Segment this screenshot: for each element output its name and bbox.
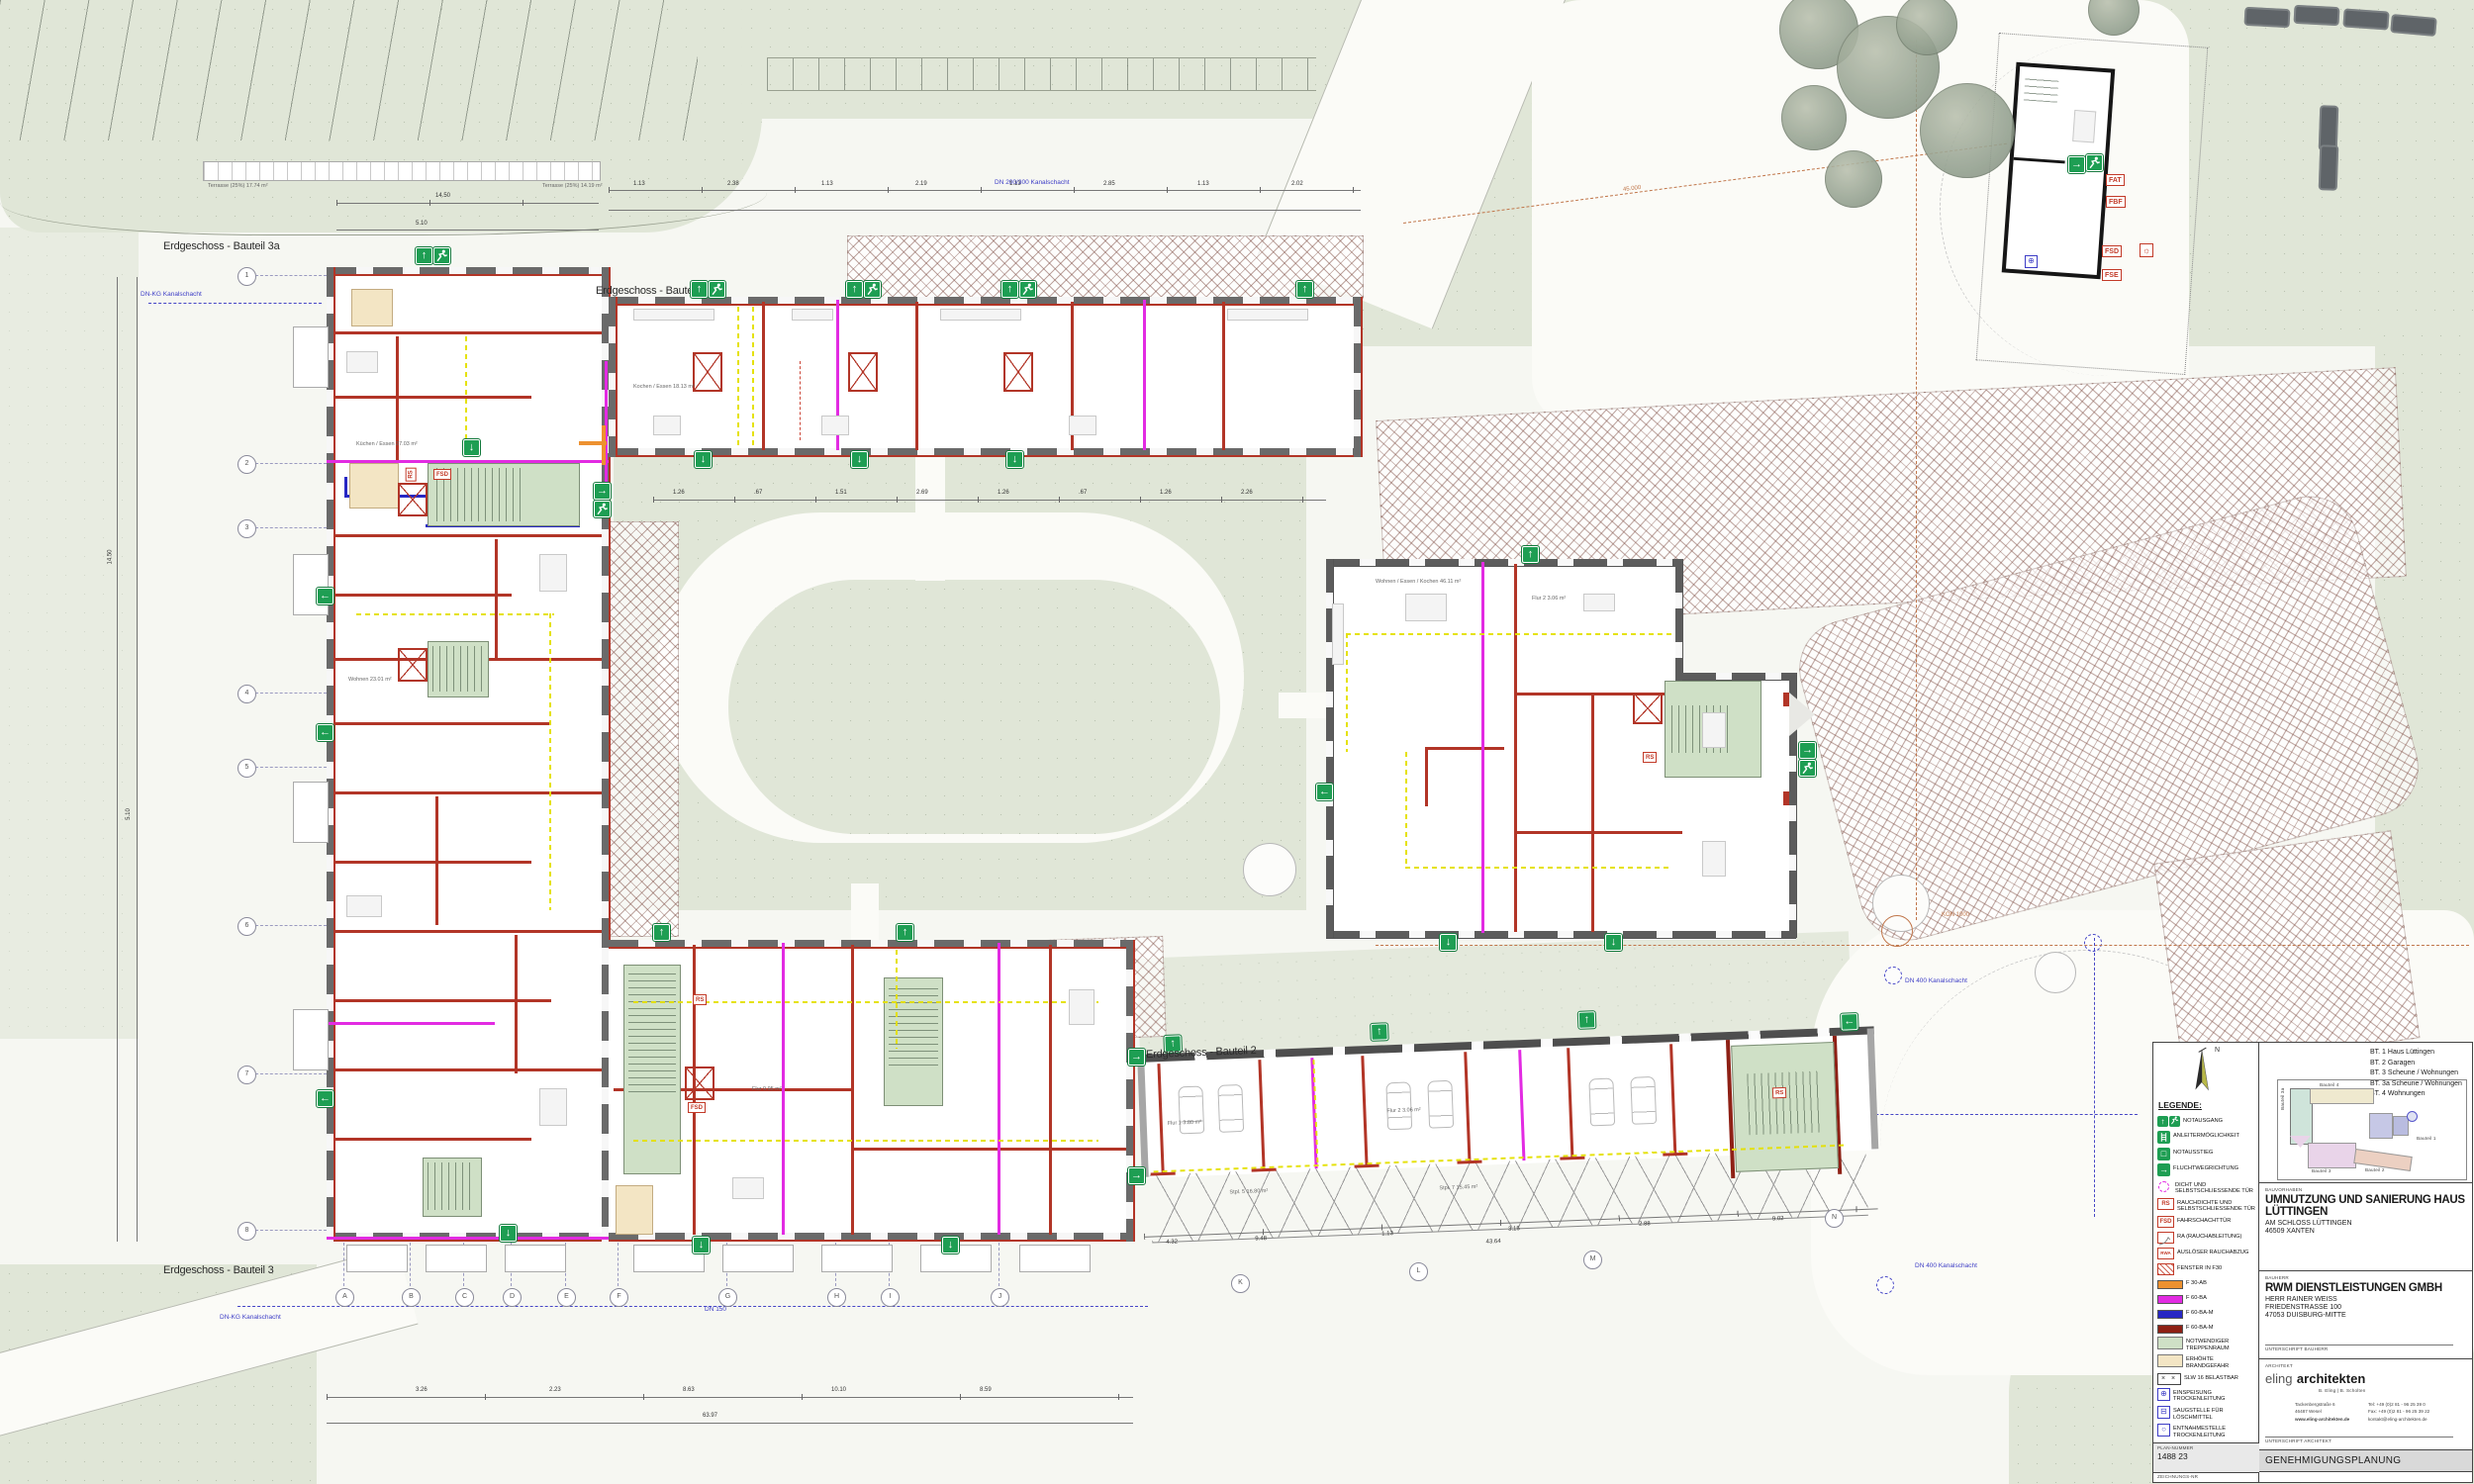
dim-value: 9.02: [1772, 1216, 1784, 1222]
keyplan-label: Bauteil 2: [2365, 1167, 2385, 1172]
client-city: 47053 DUISBURG-MITTE: [2259, 1311, 2472, 1319]
bt-list-item: BT. 2 Garagen: [2370, 1059, 2469, 1069]
f60ba-swatch: [2157, 1295, 2183, 1304]
ladder-icon: [2157, 1131, 2170, 1144]
wall: [1326, 559, 1682, 567]
partition: [1049, 945, 1052, 1235]
dim-value: 5.10: [126, 808, 132, 820]
kitchen-counter: [792, 309, 833, 321]
ghost-car: [1630, 1076, 1657, 1125]
drain-shaft: [1884, 967, 1902, 984]
crosshatch-paving: [847, 235, 1364, 299]
wall: [1682, 931, 1796, 939]
rs-door-tag: RS: [1643, 752, 1657, 763]
project-label: BAUVORHABEN: [2259, 1183, 2472, 1192]
cable-route: [465, 336, 467, 455]
manhole-kon: [1881, 915, 1913, 947]
drain-label: DN 200/300 Kanalschacht: [995, 179, 1070, 186]
exit-runner-icon: [433, 247, 450, 264]
grid-col-f: F: [610, 1288, 628, 1307]
legend-label: F 30-AB: [2186, 1278, 2207, 1286]
furniture: [539, 1088, 567, 1126]
self-closing-door-icon: [2158, 1181, 2169, 1192]
drain-shaft: [2084, 934, 2102, 952]
grid-row-8: 8: [238, 1222, 256, 1241]
kitchen-counter: [1332, 603, 1344, 665]
grid-col-j: J: [991, 1288, 1009, 1307]
tree: [1825, 150, 1882, 208]
legend-label: ANLEITERMÖGLICHKEIT: [2173, 1131, 2239, 1139]
partition: [1425, 747, 1504, 750]
dim-value: 2.26: [1241, 490, 1253, 496]
grid-col-h: H: [827, 1288, 846, 1307]
wall: [1675, 559, 1683, 683]
dim-value: 2.38: [727, 181, 739, 187]
partition: [1222, 302, 1225, 450]
drain-label: DN-KG Kanalschacht: [220, 1314, 281, 1321]
keyplan-label: Bauteil 1: [2417, 1136, 2436, 1141]
keyplan-row: BT. 1 Haus Lüttingen BT. 2 Garagen BT. 3…: [2259, 1043, 2472, 1183]
building-2-garages: RS ↑ ↑ ↑ ← Flur 1 3.80 m² Flur 2 3.06 m²…: [1136, 998, 1882, 1268]
fire-hazard-room: [616, 1185, 653, 1235]
fire-hazard-room: [351, 289, 393, 326]
exit-sign-icon: ←: [317, 588, 333, 604]
firm-partners: B. Eling | B. Scholten: [2259, 1388, 2472, 1393]
parked-car: [2244, 7, 2291, 28]
client-street: FRIEDENSTRASSE 100: [2259, 1303, 2472, 1311]
stair-treads: [2024, 74, 2059, 102]
room-label: Wohnen 23.01 m²: [348, 677, 392, 683]
parking-stalls: [767, 57, 1316, 91]
architect-row: ARCHITEKT eling architekten B. Eling | B…: [2259, 1359, 2472, 1450]
cable-route: [752, 307, 754, 445]
dim-value: 10.10: [831, 1387, 846, 1393]
legend-label: FENSTER IN F30: [2177, 1263, 2222, 1271]
stairwell: [423, 1158, 482, 1217]
legend-label: SAUGSTELLE FÜR LÖSCHMITTEL: [2173, 1406, 2256, 1420]
firewall-f60bam: [344, 477, 347, 498]
exit-sign-icon: ↑: [1578, 1011, 1596, 1029]
cable-route: [737, 307, 739, 445]
grid-leader: [999, 1243, 999, 1286]
partition: [915, 302, 918, 450]
dim-value: .67: [1079, 490, 1087, 496]
partition: [495, 539, 498, 658]
drain-line: [238, 1306, 1148, 1307]
terrace: [821, 1245, 893, 1272]
terrace: [505, 1245, 566, 1272]
partition: [333, 1138, 531, 1141]
crosshatch-paving: [2153, 830, 2420, 1071]
firewall-f60ba: [1143, 300, 1146, 450]
partition: [333, 930, 602, 933]
title-block: N LEGENDE: ↑NOTAUSGANG ANLEITERMÖGLICHKE…: [2152, 1042, 2473, 1483]
stair-treads: [428, 1162, 475, 1210]
firm-name-light: eling: [2265, 1371, 2292, 1386]
partition: [333, 861, 531, 864]
grid-row-3: 3: [238, 519, 256, 538]
exit-sign-icon: ↓: [1605, 934, 1622, 951]
dim-value: 5.10: [416, 221, 428, 227]
legend-label: F 60-BA: [2186, 1293, 2207, 1301]
fsd-door-tag: FSD: [2102, 245, 2122, 257]
grid-col-e: E: [557, 1288, 576, 1307]
exit-sign-icon: ↓: [851, 451, 868, 468]
firewall-f60ba: [327, 1022, 495, 1025]
rwa-icon: RWA: [2157, 1248, 2174, 1259]
dim-value: 2.69: [916, 490, 928, 496]
dim-value: 1.51: [835, 490, 847, 496]
exit-sign-icon: ↓: [463, 439, 480, 456]
firm-phone: Tel: +49 (0)2 81 - 96 25 39 0 Fax: +49 (…: [2368, 1401, 2429, 1423]
plan-number-cell: PLAN-NUMMER 1488 23: [2153, 1442, 2259, 1473]
terrace: [722, 1245, 794, 1272]
stair-treads: [432, 646, 482, 692]
exit-sign-icon: ←: [317, 1090, 333, 1107]
grid-leader: [255, 463, 327, 464]
parked-car: [2390, 14, 2436, 37]
dim-ticks: [609, 187, 1361, 193]
legend-item: F 60-BA: [2157, 1293, 2256, 1304]
exit-sign-icon: ↑: [653, 924, 670, 941]
grid-col-n: N: [1825, 1209, 1844, 1228]
legend-label: SLW 16 BELASTBAR: [2184, 1373, 2238, 1381]
sofa: [1583, 594, 1615, 611]
courtyard-path: [915, 455, 945, 581]
grid-row-5: 5: [238, 759, 256, 778]
room-label: Küchen / Essen 27.03 m²: [356, 441, 418, 447]
legend-item: ANLEITERMÖGLICHKEIT: [2157, 1131, 2256, 1144]
dim-value: 9.48: [1255, 1236, 1267, 1242]
project-street: AM SCHLOSS LÜTTINGEN: [2259, 1218, 2472, 1227]
legend-column: N LEGENDE: ↑NOTAUSGANG ANLEITERMÖGLICHKE…: [2153, 1043, 2259, 1482]
furniture: [732, 1177, 764, 1199]
kitchen-counter: [633, 309, 714, 321]
wall: [609, 297, 618, 457]
slw16-icon: × ×: [2157, 1373, 2181, 1385]
grid-leader: [618, 1243, 618, 1286]
furniture: [539, 554, 567, 592]
plan-number-label: PLAN-NUMMER: [2153, 1443, 2259, 1450]
cable-route: [1346, 633, 1348, 752]
drain-line: [2094, 938, 2095, 1217]
firm-city: 46487 Wesel: [2295, 1408, 2349, 1415]
bed: [1702, 712, 1726, 748]
legend-label: FLUCHTWEGRICHTUNG: [2173, 1163, 2238, 1171]
ghost-car: [1385, 1081, 1412, 1130]
dim-value: 1.26: [998, 490, 1009, 496]
stair-shaft-symbol: [848, 352, 878, 392]
wall: [609, 448, 1361, 457]
grid-row-2: 2: [238, 455, 256, 474]
elevator-shaft: [398, 648, 428, 682]
firm-name-bold: architekten: [2297, 1371, 2365, 1386]
grid-row-6: 6: [238, 917, 256, 936]
legend-item: →FLUCHTWEGRICHTUNG: [2157, 1163, 2256, 1176]
tapping-point-icon: ○: [2157, 1424, 2170, 1437]
utility-line: [1916, 40, 1917, 920]
partition: [762, 302, 765, 450]
legend-label: RA (RAUCHABLEITUNG): [2177, 1232, 2241, 1240]
exit-sign-icon: ↑: [416, 247, 432, 264]
keyplan-bauteil1: [2369, 1113, 2393, 1139]
dim-line: [336, 230, 599, 231]
signature-line: [2265, 1437, 2453, 1438]
exit-sign-icon: ↑: [1371, 1023, 1388, 1041]
legend-item: RWAAUSLÖSER RAUCHABZUG: [2157, 1248, 2256, 1259]
f60bam2-swatch: [2157, 1325, 2183, 1334]
fire-hazard-swatch: [2157, 1354, 2183, 1367]
firewall-f30ab: [602, 425, 606, 465]
client-name: RWM DIENSTLEISTUNGEN GMBH: [2259, 1280, 2472, 1294]
furniture: [1069, 989, 1094, 1025]
exit-runner-icon: [594, 501, 611, 517]
courtyard-oval: [728, 580, 1220, 834]
legend-label: NOTAUSGANG: [2183, 1116, 2223, 1124]
furniture: [346, 351, 378, 373]
stair-shaft-symbol: [693, 352, 722, 392]
dim-value: 1.13: [1381, 1231, 1393, 1237]
partition: [333, 791, 602, 794]
dim-total: 43.64: [1485, 1239, 1500, 1246]
stairwell: [1731, 1042, 1839, 1172]
terrace-pavers: [203, 161, 601, 181]
f30-window-icon: [2157, 1263, 2174, 1275]
grid-leader: [255, 693, 327, 694]
firm-address: Tackenbergstraße 6 46487 Wesel www.eling…: [2295, 1401, 2349, 1423]
grid-col-i: I: [881, 1288, 900, 1307]
dim-ticks: [327, 1394, 1133, 1400]
furniture: [346, 895, 382, 917]
terrace: [1019, 1245, 1091, 1272]
grid-col-b: B: [402, 1288, 421, 1307]
client-contact: HERR RAINER WEISS: [2259, 1294, 2472, 1303]
legend-label: AUSLÖSER RAUCHABZUG: [2177, 1248, 2248, 1255]
exit-sign-icon: ↓: [1006, 451, 1023, 468]
signature-line: [2265, 1345, 2453, 1345]
drain-label: DN-KG Kanalschacht: [141, 291, 202, 298]
project-title: UMNUTZUNG UND SANIERUNG HAUS LÜTTINGEN: [2259, 1192, 2472, 1218]
grid-col-m: M: [1583, 1251, 1602, 1269]
dim-line: [327, 1423, 1133, 1424]
furniture: [821, 416, 849, 435]
legend-items: ↑NOTAUSGANG ANLEITERMÖGLICHKEIT □NOTAUSS…: [2157, 1116, 2256, 1438]
dim-value: 1.13: [821, 181, 833, 187]
furniture: [653, 416, 681, 435]
exit-sign-icon: ←: [317, 724, 333, 741]
cable-route: [896, 950, 898, 1049]
dim-value: 3.15: [1508, 1226, 1520, 1232]
dim-ticks: [653, 497, 1326, 503]
grid-col-l: L: [1409, 1262, 1428, 1281]
grid-row-7: 7: [238, 1066, 256, 1084]
dim-value: 1.26: [673, 490, 685, 496]
paving-circle: [2035, 952, 2076, 993]
partition: [1514, 831, 1682, 834]
legend-label: DICHT UND SELBSTSCHLIESSENDE TÜR: [2175, 1180, 2256, 1194]
legend-item: ○ENTNAHMESTELLE TROCKENLEITUNG: [2157, 1424, 2256, 1438]
firewall-f60ba: [327, 1237, 609, 1240]
f60bam-swatch: [2157, 1310, 2183, 1319]
exit-legend-icon: ↑: [2157, 1116, 2180, 1127]
elevator-shaft: [1633, 693, 1663, 724]
drawing-number-label: ZEICHNUNGS-NR: [2153, 1473, 2259, 1479]
partition: [333, 1068, 602, 1071]
stairwell: [428, 641, 489, 697]
dry-riser-icon: ⊕: [2025, 255, 2038, 268]
door-jamb: [1783, 791, 1789, 805]
room-label: Flur 9.95 m²: [752, 1086, 782, 1092]
grid-leader: [255, 767, 327, 768]
drain-label: DN 150: [705, 1306, 726, 1313]
drain-line: [148, 303, 322, 304]
partition: [333, 331, 602, 334]
grid-col-k: K: [1231, 1274, 1250, 1293]
client-row: BAUHERR RWM DIENSTLEISTUNGEN GMBH HERR R…: [2259, 1271, 2472, 1359]
courtyard-path: [1279, 693, 1330, 718]
legend-label: FAHRSCHACHTTÜR: [2177, 1216, 2231, 1224]
cable-route: [356, 613, 554, 615]
floor-label-bauteil4: Erdgeschoss - Bauteil 4: [596, 285, 707, 297]
furniture: [2072, 110, 2096, 142]
project-city: 46509 XANTEN: [2259, 1227, 2472, 1235]
legend-item: □NOTAUSSTIEG: [2157, 1148, 2256, 1160]
cable-route: [633, 1140, 1098, 1142]
stair-treads: [1747, 1070, 1822, 1135]
dim-value: 14.50: [108, 549, 114, 564]
lawn-area: [0, 228, 139, 1039]
drain-label: DN 400 Kanalschacht: [1905, 977, 1967, 984]
drain-label: DN 400 Kanalschacht: [1915, 1262, 1977, 1269]
legend-item: FSDFAHRSCHACHTTÜR: [2157, 1216, 2256, 1228]
north-label: N: [2215, 1047, 2220, 1054]
partition: [1514, 564, 1517, 932]
parked-car: [2342, 8, 2389, 30]
architect-label: ARCHITEKT: [2259, 1359, 2472, 1368]
room-label: Wohnen / Essen / Kochen 46.11 m²: [1376, 579, 1461, 585]
legend-label: EINSPEISUNG TROCKENLEITUNG: [2173, 1388, 2256, 1402]
legend-item: F 30-AB: [2157, 1278, 2256, 1289]
bed: [1702, 841, 1726, 877]
parked-car: [2319, 144, 2339, 191]
door-jamb: [1783, 693, 1789, 706]
firm-web: www.eling-architekten.de: [2295, 1416, 2349, 1423]
kon-label: KON 1000: [1942, 912, 1969, 918]
partition: [851, 945, 854, 1235]
exit-sign-icon: →: [1799, 742, 1816, 759]
grid-col-d: D: [503, 1288, 522, 1307]
client-label: BAUHERR: [2259, 1271, 2472, 1280]
legend-item: F 60-BA-M: [2157, 1308, 2256, 1319]
rs-door-tag: RS: [406, 467, 417, 481]
legend-label: F 60-BA-M: [2186, 1308, 2214, 1316]
ra-icon: [2157, 1232, 2174, 1244]
dim-value: .67: [754, 490, 762, 496]
exit-runner-icon: [709, 281, 725, 298]
exit-sign-icon: ↓: [942, 1237, 959, 1253]
partition: [333, 722, 551, 725]
partition: [1591, 693, 1594, 932]
legend-item: ⊕EINSPEISUNG TROCKENLEITUNG: [2157, 1388, 2256, 1402]
exit-sign-icon: ↑: [897, 924, 913, 941]
legend-label: RAUCHDICHTE UND SELBSTSCHLIESSENDE TÜR: [2177, 1198, 2256, 1212]
site-plan-sheet: 45.000 KON 1000 DN-KG Kanalschacht DN-KG…: [0, 0, 2474, 1484]
keyplan-garage: [2393, 1116, 2409, 1136]
dim-value: 2.85: [1103, 181, 1115, 187]
cable-route: [549, 613, 551, 910]
exit-sign-icon: →: [1128, 1167, 1145, 1184]
dim-line: [137, 277, 138, 1242]
table: [1405, 594, 1447, 621]
dim-value: 2.88: [1639, 1221, 1651, 1227]
bt-list-item: BT. 3 Scheune / Wohnungen: [2370, 1068, 2469, 1079]
fbf-door-tag: FBF: [2106, 196, 2126, 208]
furniture: [1069, 416, 1096, 435]
suction-point-icon: ⊟: [2157, 1406, 2170, 1419]
exit-sign-icon: ↑: [1296, 281, 1313, 298]
balcony: [293, 782, 329, 843]
wall: [609, 1233, 1133, 1242]
parked-car: [2294, 5, 2340, 26]
room-label: Kochen / Essen 18.13 m²: [633, 384, 695, 390]
f30ab-swatch: [2157, 1280, 2183, 1289]
dim-ticks: [336, 200, 599, 206]
partition: [333, 396, 531, 399]
partition: [333, 594, 512, 597]
ghost-car: [1178, 1085, 1204, 1134]
keyplan-label: Bauteil 3: [2312, 1168, 2331, 1173]
legend-item: F 60-BA-M: [2157, 1323, 2256, 1334]
feed-dry-riser-icon: ⊕: [2157, 1388, 2170, 1401]
partition: [333, 999, 551, 1002]
firm-mail: kontakt@eling-architekten.de: [2368, 1416, 2429, 1423]
legend-item: RA (RAUCHABLEITUNG): [2157, 1232, 2256, 1244]
legend-item: RSRAUCHDICHTE UND SELBSTSCHLIESSENDE TÜR: [2157, 1198, 2256, 1212]
legend-label: ENTNAHMESTELLE TROCKENLEITUNG: [2173, 1424, 2256, 1438]
terrace-label: Terrasse (25%) 14.19 m²: [542, 183, 603, 189]
partition: [333, 534, 602, 537]
dim-value: 14.50: [435, 193, 450, 199]
tree: [1781, 85, 1847, 150]
fsd-icon: FSD: [2157, 1216, 2174, 1228]
exit-runner-icon: [864, 281, 881, 298]
dim-value: 2.02: [1291, 181, 1303, 187]
fire-hazard-room: [349, 463, 399, 509]
wall: [1326, 931, 1682, 939]
dim-value: 4.32: [1166, 1240, 1178, 1246]
exit-sign-icon: ↓: [1440, 934, 1457, 951]
paving-circle: [1243, 843, 1296, 896]
dim-value: 2.23: [549, 1387, 561, 1393]
exit-sign-icon: →: [1128, 1049, 1145, 1066]
firm-tel: Tel: +49 (0)2 81 - 96 25 39 0: [2368, 1401, 2429, 1408]
grid-row-4: 4: [238, 685, 256, 703]
phase-title: GENEHMIGUNGSPLANUNG: [2259, 1450, 2472, 1466]
firewall-f30ab: [579, 441, 607, 445]
grid-leader: [255, 1230, 327, 1231]
wall: [1126, 940, 1135, 1242]
floor-label-bauteil3a: Erdgeschoss - Bauteil 3a: [163, 240, 280, 252]
dim-value: 1.13: [1197, 181, 1209, 187]
stair-shaft-symbol: [1003, 352, 1033, 392]
stairwell: [623, 965, 681, 1174]
dim-value: 8.63: [683, 1387, 695, 1393]
grid-leader: [255, 1073, 327, 1074]
wall: [609, 940, 1133, 949]
partition: [2014, 157, 2065, 164]
exit-sign-icon: ↑: [1522, 546, 1539, 563]
north-arrow-icon: [2191, 1047, 2213, 1096]
